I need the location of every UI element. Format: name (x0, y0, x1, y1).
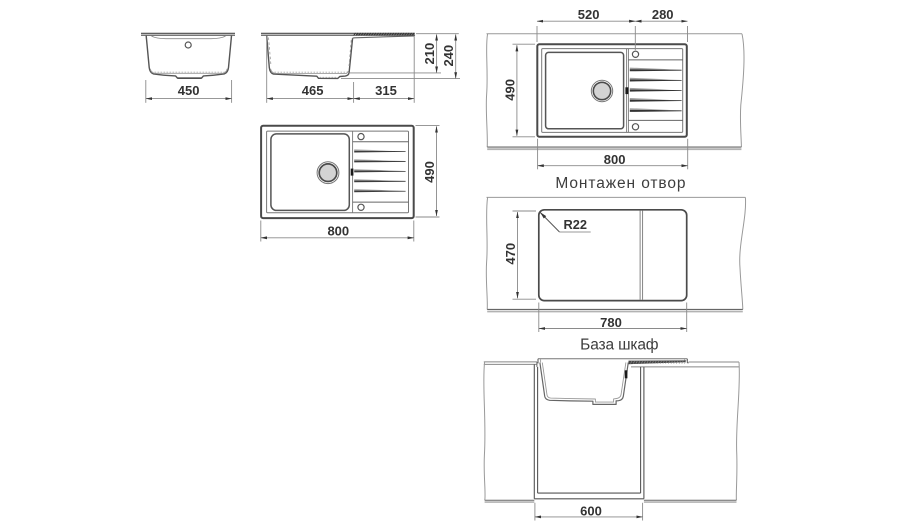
svg-text:315: 315 (375, 83, 397, 98)
svg-text:780: 780 (600, 315, 622, 330)
svg-text:Монтажен отвор: Монтажен отвор (555, 175, 686, 192)
svg-text:800: 800 (604, 152, 626, 167)
svg-text:490: 490 (502, 79, 517, 101)
svg-text:490: 490 (422, 161, 437, 183)
svg-text:210: 210 (422, 43, 437, 65)
svg-text:465: 465 (302, 83, 324, 98)
svg-text:470: 470 (503, 243, 518, 265)
svg-text:280: 280 (652, 7, 674, 22)
svg-text:600: 600 (580, 504, 602, 519)
svg-text:800: 800 (327, 223, 349, 238)
svg-text:520: 520 (578, 7, 600, 22)
svg-text:База шкаф: База шкаф (580, 337, 659, 354)
svg-text:R22: R22 (564, 217, 587, 232)
svg-text:240: 240 (441, 45, 456, 67)
svg-text:450: 450 (178, 83, 200, 98)
